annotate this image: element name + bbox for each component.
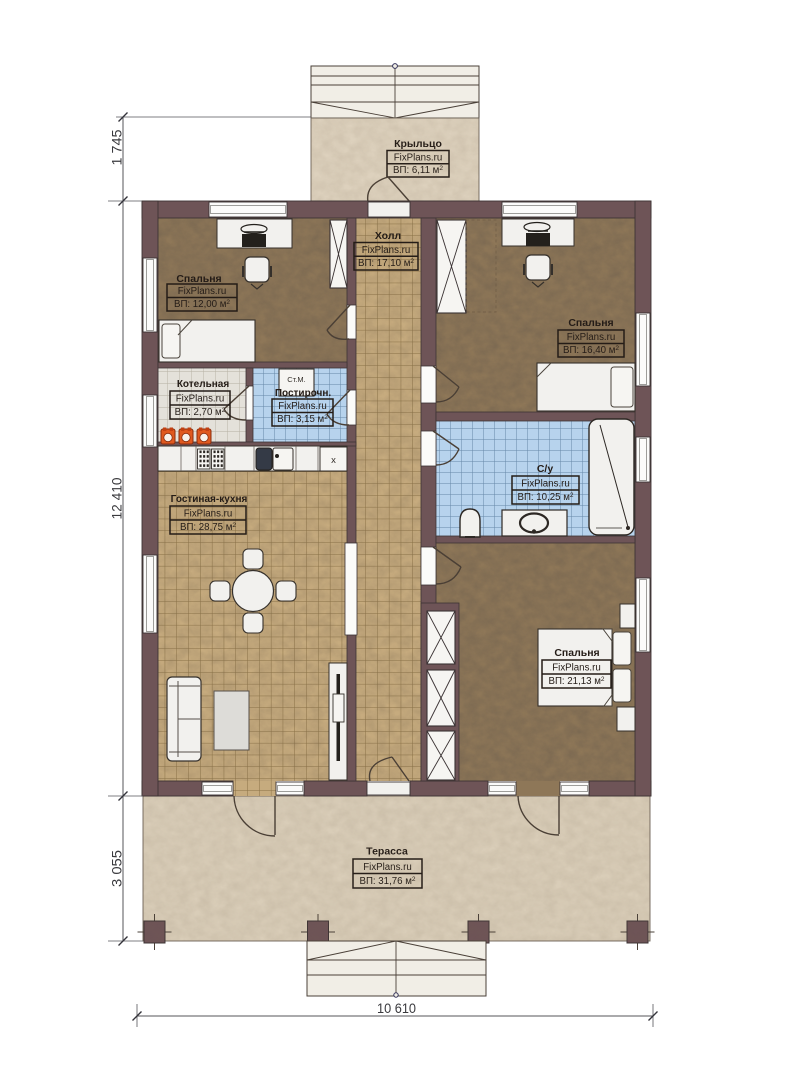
- svg-text:Гостиная-кухня: Гостиная-кухня: [171, 494, 248, 505]
- svg-text:FixPlans.ru: FixPlans.ru: [567, 332, 615, 343]
- svg-text:ВП: 17,10 м2: ВП: 17,10 м2: [358, 258, 414, 269]
- svg-text:FixPlans.ru: FixPlans.ru: [552, 663, 600, 674]
- svg-text:Спальня: Спальня: [568, 317, 613, 329]
- svg-text:1 745: 1 745: [109, 129, 125, 165]
- svg-text:FixPlans.ru: FixPlans.ru: [184, 509, 232, 520]
- svg-text:ВП: 3,15 м2: ВП: 3,15 м2: [277, 414, 328, 425]
- svg-text:Спальня: Спальня: [176, 273, 221, 285]
- svg-text:ВП: 16,40 м2: ВП: 16,40 м2: [563, 345, 619, 356]
- svg-text:ВП: 21,13 м2: ВП: 21,13 м2: [548, 676, 604, 687]
- svg-text:ВП: 28,75 м2: ВП: 28,75 м2: [180, 522, 236, 533]
- svg-text:Постирочн.: Постирочн.: [275, 388, 332, 399]
- svg-text:FixPlans.ru: FixPlans.ru: [278, 401, 326, 412]
- svg-text:FixPlans.ru: FixPlans.ru: [362, 245, 410, 256]
- svg-text:Спальня: Спальня: [554, 647, 599, 659]
- svg-text:3 055: 3 055: [109, 850, 125, 887]
- svg-text:FixPlans.ru: FixPlans.ru: [521, 479, 569, 490]
- svg-text:ВП: 2,70 м2: ВП: 2,70 м2: [175, 407, 226, 418]
- svg-text:FixPlans.ru: FixPlans.ru: [178, 286, 226, 297]
- svg-text:С/у: С/у: [537, 463, 554, 475]
- svg-text:FixPlans.ru: FixPlans.ru: [176, 394, 224, 405]
- svg-text:Котельная: Котельная: [177, 379, 230, 390]
- svg-text:Холл: Холл: [375, 230, 401, 242]
- svg-text:10 610: 10 610: [377, 1000, 416, 1016]
- svg-text:ВП: 12,00 м2: ВП: 12,00 м2: [174, 299, 230, 310]
- svg-text:x: x: [331, 455, 336, 466]
- svg-text:12 410: 12 410: [109, 477, 125, 519]
- svg-text:Ст.М.: Ст.М.: [287, 375, 305, 384]
- svg-text:ВП: 10,25 м2: ВП: 10,25 м2: [517, 492, 573, 503]
